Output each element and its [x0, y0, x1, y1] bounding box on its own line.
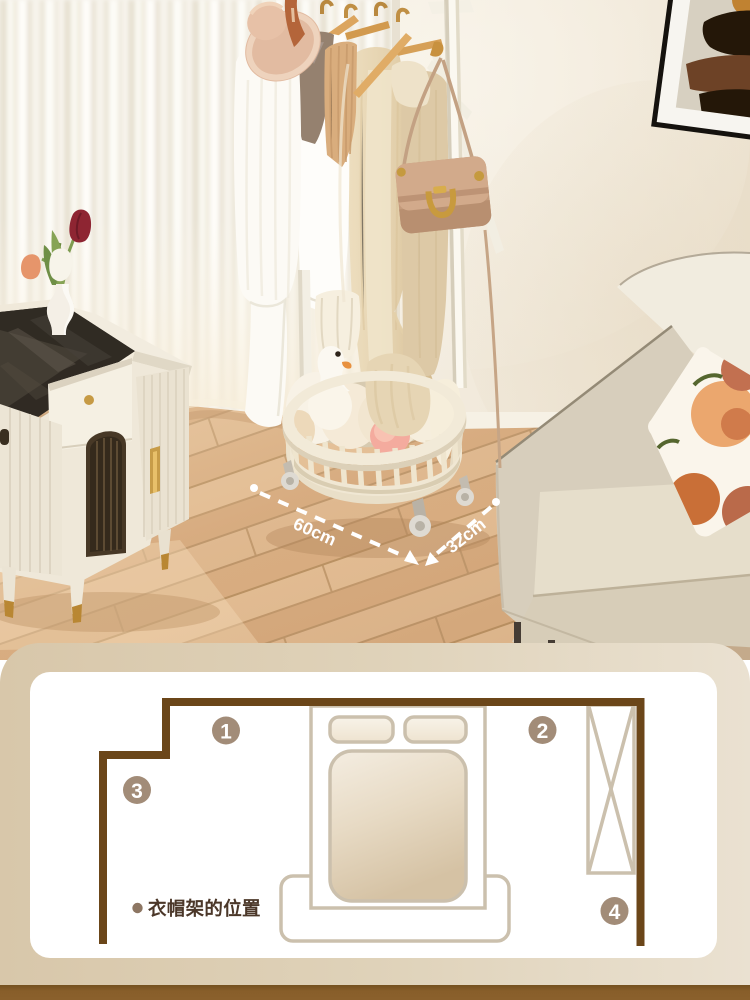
svg-text:2: 2: [537, 720, 549, 743]
svg-text:1: 1: [220, 721, 232, 744]
svg-text:3: 3: [131, 780, 143, 803]
svg-text:4: 4: [609, 901, 621, 924]
svg-text:衣帽架的位置: 衣帽架的位置: [148, 898, 261, 919]
